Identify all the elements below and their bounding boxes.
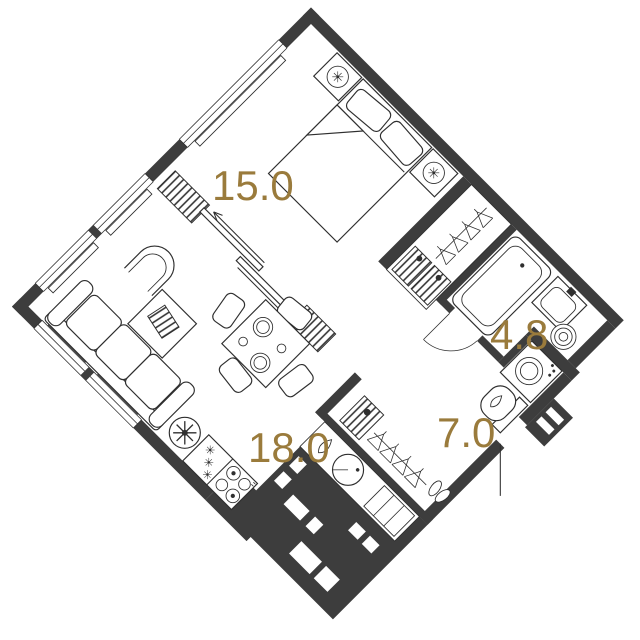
shelf-unit xyxy=(157,171,209,223)
window-bedroom xyxy=(179,40,292,153)
room-area-label-hallway: 7.0 xyxy=(437,409,495,456)
armchair xyxy=(124,238,182,296)
double-bed xyxy=(268,79,431,242)
bathroom-door xyxy=(423,313,476,366)
room-area-label-bedroom: 15.0 xyxy=(212,162,294,209)
floor-plan: 15.0 18.0 4.8 7.0 xyxy=(0,0,640,640)
bedroom xyxy=(155,29,511,385)
floor-plan-canvas: 15.0 18.0 4.8 7.0 xyxy=(0,0,640,640)
room-area-label-living-kitchen: 18.0 xyxy=(248,424,330,471)
sliding-arrow-icon xyxy=(211,209,267,265)
room-area-label-bathroom: 4.8 xyxy=(490,311,548,358)
